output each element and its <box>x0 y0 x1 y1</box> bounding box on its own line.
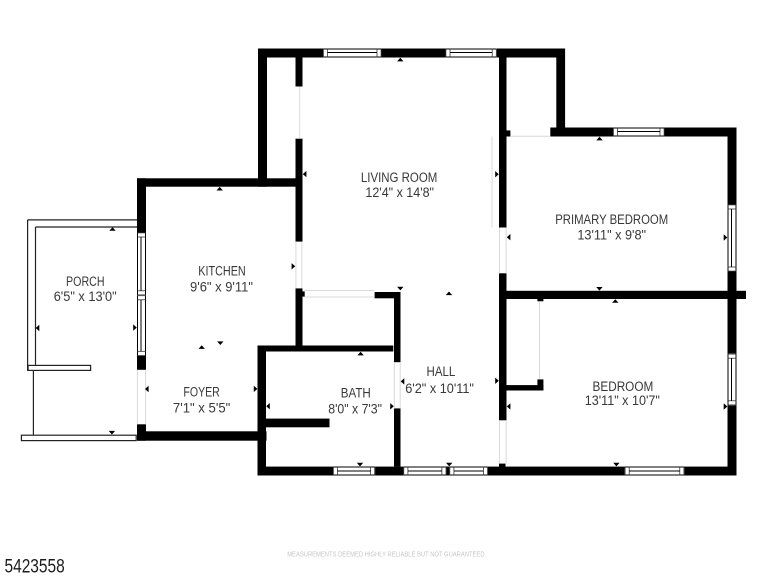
svg-text:13'11" x 10'7": 13'11" x 10'7" <box>585 393 660 409</box>
svg-text:LIVING ROOM: LIVING ROOM <box>361 170 437 186</box>
svg-text:12'4" x 14'8": 12'4" x 14'8" <box>365 185 434 201</box>
svg-text:MEASUREMENTS DEEMED HIGHLY REL: MEASUREMENTS DEEMED HIGHLY RELIABLE BUT … <box>287 550 486 559</box>
svg-text:5423558: 5423558 <box>5 557 65 576</box>
svg-text:9'6" x 9'11": 9'6" x 9'11" <box>190 280 253 296</box>
svg-text:6'2" x 10'11": 6'2" x 10'11" <box>405 381 474 397</box>
svg-text:PRIMARY BEDROOM: PRIMARY BEDROOM <box>555 212 668 228</box>
svg-text:6'5" x 13'0": 6'5" x 13'0" <box>54 289 117 305</box>
svg-text:PORCH: PORCH <box>66 274 105 290</box>
svg-text:FOYER: FOYER <box>183 385 219 401</box>
svg-text:7'1" x 5'5": 7'1" x 5'5" <box>173 401 230 417</box>
svg-text:8'0" x 7'3": 8'0" x 7'3" <box>328 402 382 418</box>
svg-text:BATH: BATH <box>341 385 371 401</box>
svg-text:KITCHEN: KITCHEN <box>198 263 246 279</box>
svg-text:HALL: HALL <box>427 364 456 380</box>
svg-text:13'11" x 9'8": 13'11" x 9'8" <box>577 228 646 244</box>
